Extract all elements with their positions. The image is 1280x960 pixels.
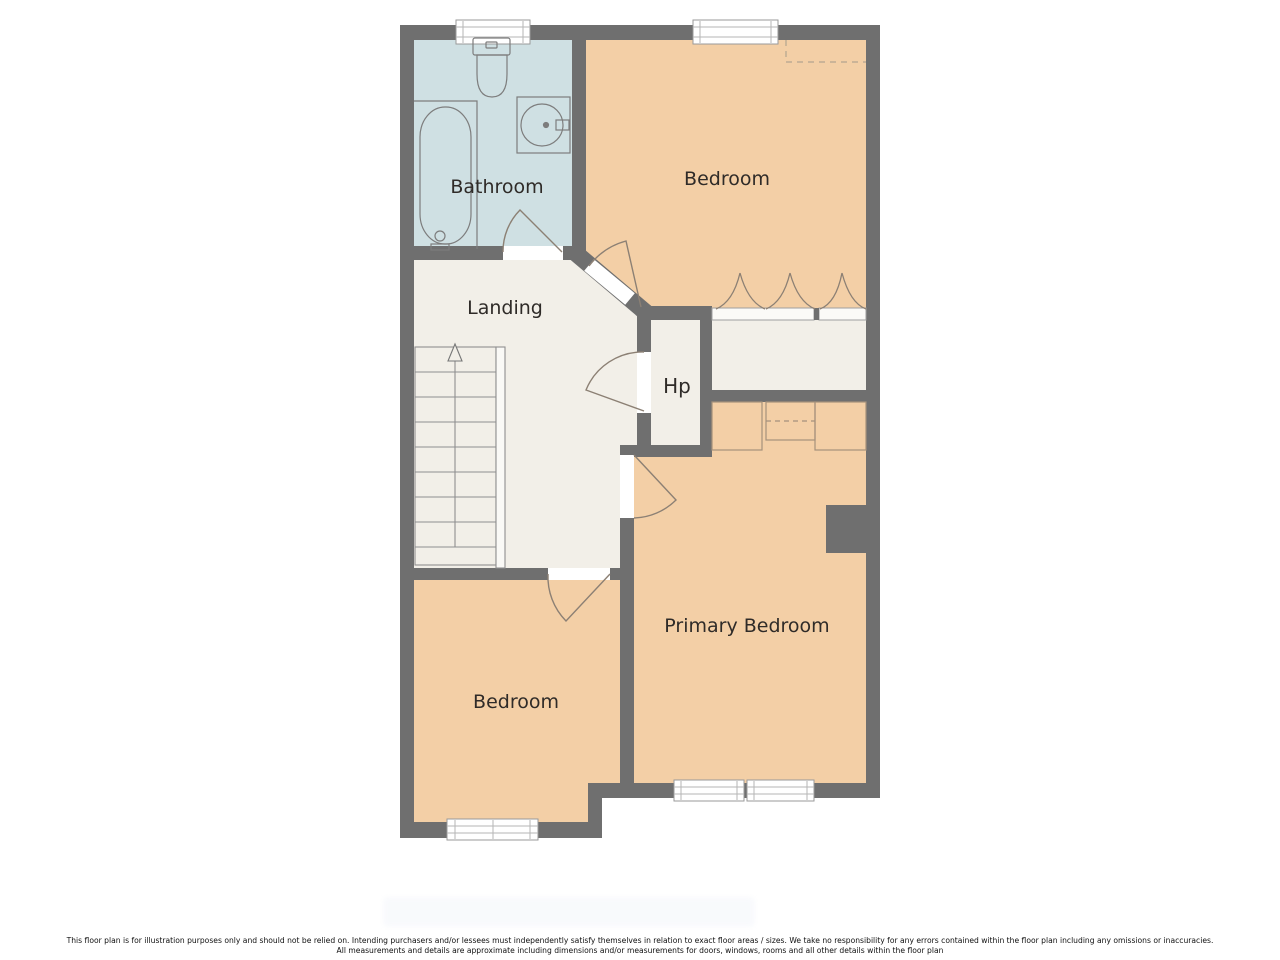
chimney-breast	[826, 505, 866, 553]
label-landing: Landing	[467, 297, 543, 319]
staircase	[415, 344, 505, 568]
bedroom-bottom-door-opening	[548, 568, 610, 580]
room-bathroom	[407, 32, 580, 258]
primary-bedroom-window-1	[674, 780, 744, 801]
floorplan-drawing: Bathroom Bedroom Landing Hp Primary Bedr…	[0, 0, 1280, 960]
primary-bedroom-window-2	[747, 780, 814, 801]
label-primary-bedroom: Primary Bedroom	[664, 615, 829, 637]
hot-press-door-opening	[637, 352, 651, 413]
label-hot-press: Hp	[663, 374, 691, 398]
bathroom-door-opening	[503, 246, 563, 260]
disclaimer-line-2: All measurements and details are approxi…	[0, 946, 1280, 956]
label-bedroom-bottom: Bedroom	[473, 691, 559, 713]
bathroom-window	[456, 20, 530, 44]
label-bedroom-top: Bedroom	[684, 168, 770, 190]
built-in-wardrobe	[706, 312, 868, 396]
floorplan-page: Bathroom Bedroom Landing Hp Primary Bedr…	[0, 0, 1280, 960]
stairs-handrail	[496, 347, 505, 568]
label-bathroom: Bathroom	[450, 176, 543, 198]
bedroom-bottom-window	[447, 819, 538, 840]
disclaimer-line-1: This floor plan is for illustration purp…	[0, 936, 1280, 946]
bedroom-top-window	[693, 20, 778, 44]
primary-bedroom-door-opening	[620, 455, 634, 518]
